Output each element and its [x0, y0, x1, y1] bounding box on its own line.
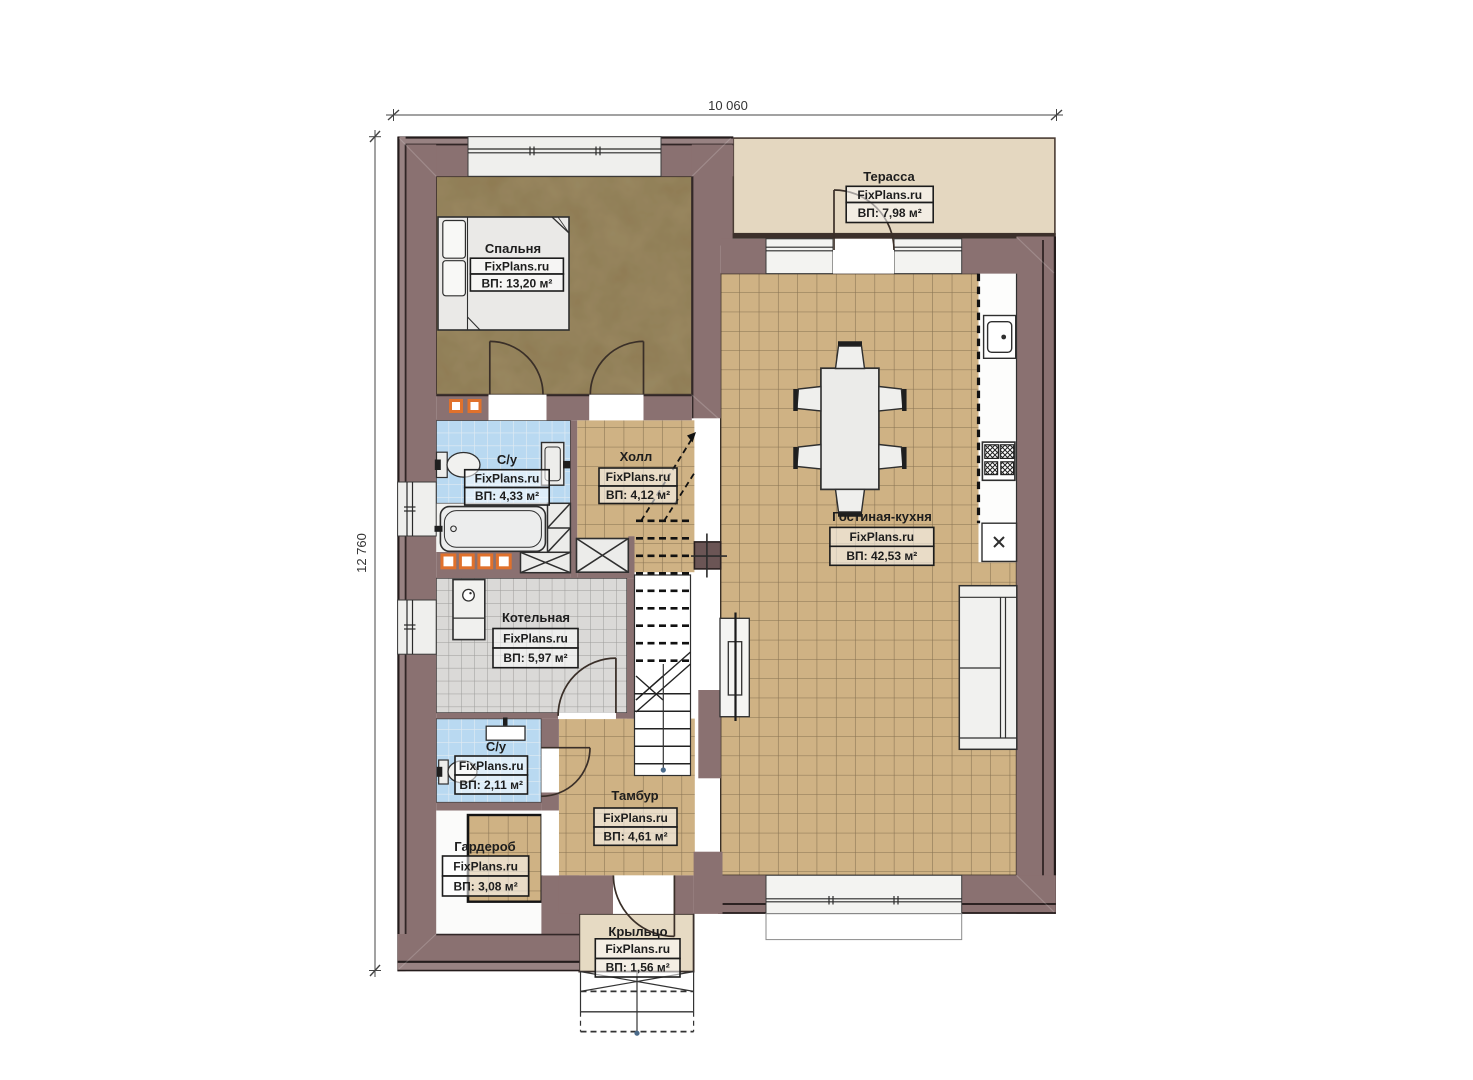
svg-text:ВП: 13,20 м²: ВП: 13,20 м²	[481, 276, 552, 290]
svg-text:ВП: 4,33 м²: ВП: 4,33 м²	[475, 489, 539, 503]
svg-text:С/у: С/у	[486, 739, 507, 754]
svg-text:FixPlans.ru: FixPlans.ru	[485, 260, 550, 274]
svg-text:FixPlans.ru: FixPlans.ru	[605, 942, 670, 956]
svg-text:FixPlans.ru: FixPlans.ru	[453, 860, 518, 874]
svg-text:FixPlans.ru: FixPlans.ru	[849, 530, 914, 544]
svg-text:Гардероб: Гардероб	[454, 839, 515, 854]
svg-text:Холл: Холл	[620, 449, 653, 464]
svg-text:ВП: 7,98 м²: ВП: 7,98 м²	[858, 206, 922, 220]
svg-text:Гостиная-кухня: Гостиная-кухня	[832, 509, 932, 524]
svg-text:ВП: 3,08 м²: ВП: 3,08 м²	[454, 880, 518, 894]
svg-text:ВП: 4,12 м²: ВП: 4,12 м²	[606, 488, 670, 502]
svg-text:Крыльцо: Крыльцо	[608, 924, 667, 939]
svg-text:FixPlans.ru: FixPlans.ru	[857, 188, 922, 202]
svg-text:ВП: 4,61 м²: ВП: 4,61 м²	[603, 829, 667, 843]
svg-text:12 760: 12 760	[354, 533, 369, 573]
svg-text:FixPlans.ru: FixPlans.ru	[503, 632, 568, 646]
svg-text:ВП: 1,56 м²: ВП: 1,56 м²	[606, 961, 670, 975]
svg-text:FixPlans.ru: FixPlans.ru	[606, 470, 671, 484]
svg-text:FixPlans.ru: FixPlans.ru	[603, 811, 668, 825]
svg-text:С/у: С/у	[497, 452, 518, 467]
svg-text:Котельная: Котельная	[502, 610, 570, 625]
svg-text:ВП: 2,11 м²: ВП: 2,11 м²	[459, 778, 523, 792]
svg-text:Спальня: Спальня	[485, 241, 541, 256]
svg-text:10 060: 10 060	[708, 98, 748, 113]
svg-text:ВП: 5,97 м²: ВП: 5,97 м²	[503, 651, 567, 665]
svg-text:ВП: 42,53 м²: ВП: 42,53 м²	[846, 549, 917, 563]
svg-text:FixPlans.ru: FixPlans.ru	[475, 472, 540, 486]
svg-text:FixPlans.ru: FixPlans.ru	[459, 759, 524, 773]
svg-text:Тамбур: Тамбур	[611, 788, 658, 803]
svg-text:Терасса: Терасса	[863, 169, 915, 184]
